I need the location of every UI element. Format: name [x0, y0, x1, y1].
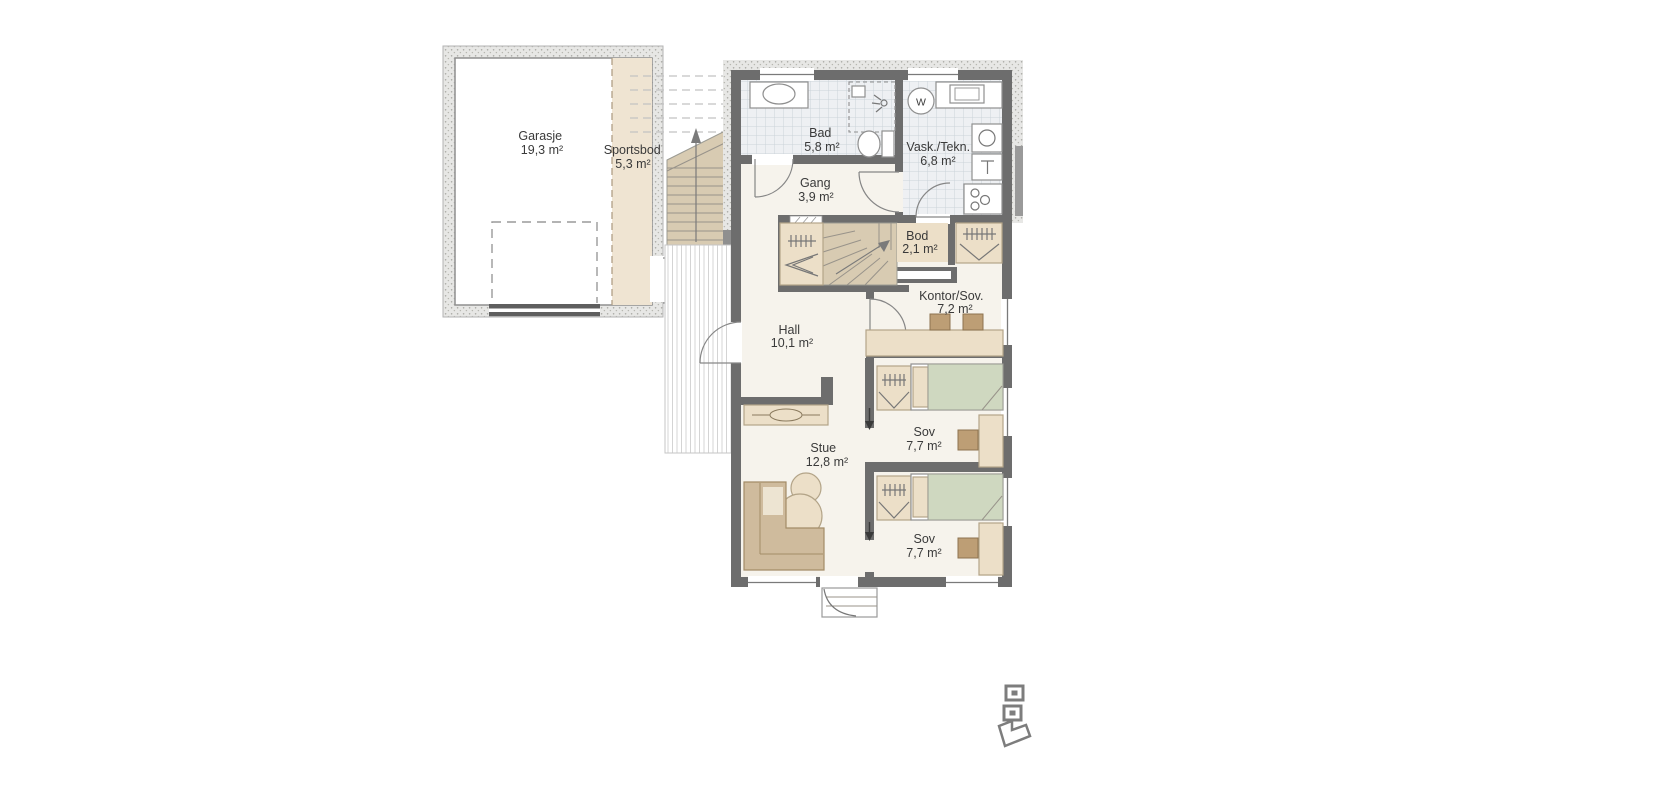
wall-segment: [895, 80, 903, 172]
desk: [979, 415, 1003, 467]
front-door-gap: [729, 322, 742, 363]
pillow: [913, 477, 928, 517]
deck: [665, 245, 733, 453]
toilet-icon: [858, 131, 880, 157]
chair: [958, 430, 978, 450]
exterior-duct: [1015, 146, 1023, 216]
wall-segment: [821, 377, 833, 405]
vask-inner-door-gap: [916, 214, 950, 224]
toilet-tank: [882, 131, 894, 157]
shower-drain: [852, 86, 865, 97]
duvet: [928, 364, 1003, 410]
plan-logo: [999, 686, 1030, 746]
logo-square-dot: [1012, 691, 1018, 696]
chair: [963, 314, 983, 330]
desk: [979, 523, 1003, 575]
chair: [930, 314, 950, 330]
wall-segment: [741, 397, 833, 405]
desk: [866, 330, 1003, 356]
wardrobe: [877, 476, 911, 520]
sportsbod-floor: [612, 58, 652, 305]
chair: [958, 538, 978, 558]
dryer-icon: [972, 124, 1002, 152]
wall-segment: [778, 285, 909, 292]
wardrobe: [877, 366, 911, 410]
room-label-bad: Bad 5,8 m²: [804, 126, 839, 154]
wardrobe-hall: [780, 223, 823, 285]
floor-plan-page: Garasje 19,3 m² Sportsbod 5,3 m²: [0, 0, 1670, 800]
wardrobe-corridor: [956, 223, 1002, 263]
washer-letter: W: [916, 97, 926, 109]
pillow: [913, 367, 928, 407]
garage-door-leaf: [489, 304, 600, 309]
floor-plan: Garasje 19,3 m² Sportsbod 5,3 m²: [0, 0, 1670, 800]
stair-body: [823, 223, 897, 285]
room-label-gang: Gang 3,9 m²: [798, 176, 834, 204]
sofa-chaise-pad: [763, 487, 783, 515]
sink-icon: [763, 84, 795, 104]
wall-segment: [865, 572, 874, 577]
duvet: [928, 474, 1003, 520]
water-heater: [964, 184, 1002, 214]
house: W: [700, 60, 1023, 617]
rear-door-gap: [820, 576, 858, 589]
garage-door-leaf: [489, 312, 600, 317]
stair-direction-arrow: [691, 128, 701, 143]
room-label-garasje: Garasje 19,3 m²: [518, 129, 565, 157]
bad-door-gap: [752, 154, 793, 165]
logo-square-dot: [1010, 711, 1016, 716]
bowl-icon: [770, 409, 802, 421]
logo-arrow: [999, 721, 1030, 746]
sportsbod-door-gap: [650, 256, 664, 302]
entry-steps: [822, 588, 877, 617]
